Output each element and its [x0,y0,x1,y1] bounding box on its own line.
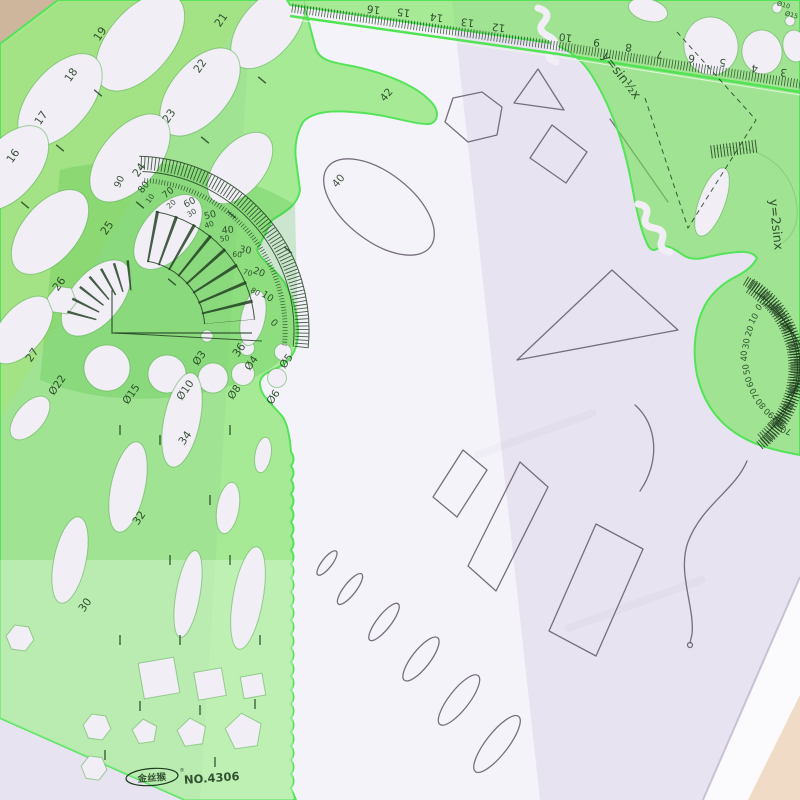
ruler-number: 16 [366,2,381,16]
degree-label: 40 [740,351,750,362]
photo-scene: 16 17 18 19 21 22 23 24 25 26 27 30 32 3… [0,0,800,800]
ruler-number: 15 [396,5,411,19]
degree-label: 30 [741,338,752,350]
ruler-number: 12 [491,20,506,34]
ruler-number: 14 [429,10,444,24]
photo-canvas: 16 17 18 19 21 22 23 24 25 26 27 30 32 3… [0,0,800,800]
degree-label: 60 [232,250,242,260]
ruler-number: 10 [558,30,573,44]
ruler-number: 13 [460,15,475,29]
brand-logo: 金丝猴 [136,771,167,785]
degree-label: 50 [219,233,230,243]
degree-label: 50 [741,363,753,375]
